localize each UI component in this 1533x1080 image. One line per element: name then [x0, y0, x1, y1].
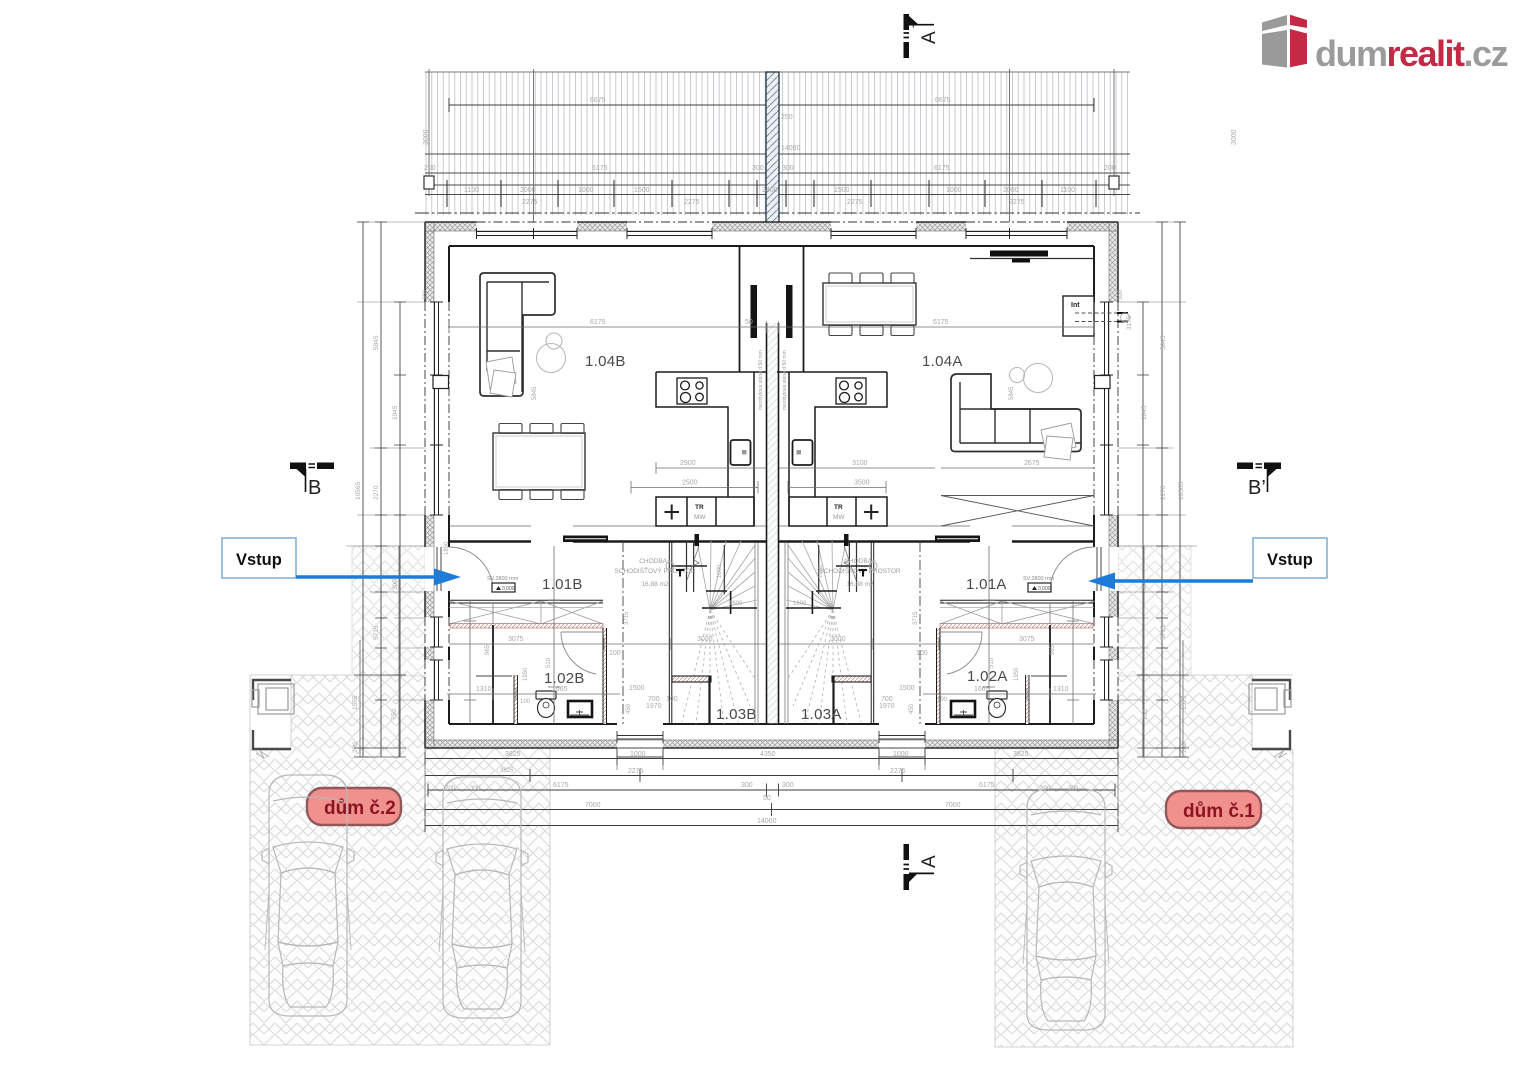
svg-text:750: 750 [391, 709, 398, 720]
svg-text:6175: 6175 [933, 319, 949, 326]
svg-text:6675: 6675 [590, 97, 606, 104]
svg-text:1950: 1950 [523, 667, 529, 681]
svg-text:MW: MW [833, 514, 845, 521]
svg-text:2270: 2270 [373, 485, 380, 500]
svg-text:5715: 5715 [373, 625, 380, 640]
svg-text:SV.2800 mm: SV.2800 mm [487, 576, 519, 582]
svg-text:1850: 1850 [444, 541, 450, 555]
svg-text:1970: 1970 [879, 703, 895, 710]
svg-text:3825: 3825 [500, 768, 514, 774]
svg-text:3715: 3715 [624, 611, 630, 625]
svg-text:3825: 3825 [1013, 751, 1029, 758]
svg-text:SV.2800 mm: SV.2800 mm [1023, 576, 1055, 582]
svg-text:300: 300 [752, 165, 764, 172]
svg-text:1.04A: 1.04A [922, 353, 963, 370]
svg-text:3100: 3100 [852, 460, 868, 467]
svg-text:4350: 4350 [760, 751, 776, 758]
svg-text:CHODBA+: CHODBA+ [844, 558, 876, 565]
svg-text:3000: 3000 [830, 636, 846, 643]
svg-text:3075: 3075 [508, 636, 524, 643]
svg-text:5845: 5845 [1009, 386, 1015, 400]
svg-text:dům č.1: dům č.1 [1183, 801, 1255, 822]
svg-text:2675: 2675 [1024, 460, 1040, 467]
svg-text:2900: 2900 [680, 460, 696, 467]
svg-text:1500: 1500 [834, 187, 850, 194]
svg-text:1500: 1500 [634, 187, 650, 194]
svg-text:200: 200 [424, 165, 436, 172]
svg-text:300: 300 [741, 782, 753, 789]
svg-text:1.03B: 1.03B [716, 706, 757, 723]
svg-text:750: 750 [1142, 709, 1149, 720]
svg-text:6675: 6675 [935, 97, 951, 104]
svg-text:2000: 2000 [1003, 187, 1019, 194]
svg-text:Int: Int [1071, 302, 1080, 309]
svg-text:700: 700 [881, 696, 893, 703]
svg-text:100: 100 [937, 697, 948, 703]
svg-text:510: 510 [989, 657, 995, 668]
svg-text:2275: 2275 [1009, 199, 1025, 206]
svg-text:2275: 2275 [847, 199, 863, 206]
svg-text:300: 300 [470, 786, 481, 792]
svg-text:100: 100 [666, 696, 678, 703]
svg-text:1575: 1575 [352, 695, 359, 710]
svg-text:50: 50 [745, 319, 753, 326]
svg-text:300: 300 [423, 289, 429, 300]
svg-text:dumrealit.cz: dumrealit.cz [1315, 33, 1508, 74]
svg-text:1.01B: 1.01B [542, 576, 583, 593]
svg-text:3000: 3000 [1231, 129, 1238, 145]
svg-text:450: 450 [626, 703, 632, 714]
svg-text:1045: 1045 [392, 405, 399, 420]
svg-text:14000: 14000 [757, 818, 777, 825]
svg-text:1000: 1000 [946, 187, 962, 194]
svg-text:A: A [919, 855, 940, 868]
svg-text:16,88 m2: 16,88 m2 [641, 581, 668, 588]
svg-text:1045: 1045 [1141, 405, 1148, 420]
svg-text:3825: 3825 [505, 751, 521, 758]
svg-text:6175: 6175 [934, 165, 950, 172]
svg-text:16,88 m2: 16,88 m2 [846, 581, 873, 588]
svg-text:1.02B: 1.02B [544, 670, 585, 687]
svg-text:2275: 2275 [684, 199, 700, 206]
svg-text:TR: TR [695, 504, 704, 511]
svg-text:MW: MW [694, 514, 706, 521]
svg-text:B’: B’ [1248, 477, 1266, 499]
svg-text:6175: 6175 [590, 319, 606, 326]
svg-text:2000: 2000 [520, 187, 536, 194]
svg-text:5845: 5845 [1160, 335, 1167, 350]
svg-text:1000: 1000 [630, 751, 646, 758]
svg-text:7000: 7000 [945, 802, 961, 809]
svg-text:5845: 5845 [373, 335, 380, 350]
svg-text:0,000: 0,000 [502, 586, 515, 592]
svg-text:1665: 1665 [974, 686, 990, 693]
svg-text:mezibytová stěna d 50 mm: mezibytová stěna d 50 mm [758, 350, 764, 410]
svg-text:1600: 1600 [729, 601, 743, 607]
svg-text:100: 100 [609, 650, 621, 657]
svg-text:100: 100 [520, 699, 531, 705]
svg-text:100: 100 [916, 650, 928, 657]
svg-text:3000: 3000 [697, 636, 713, 643]
svg-text:1000: 1000 [717, 564, 723, 578]
svg-text:200: 200 [352, 742, 359, 753]
svg-text:3175: 3175 [1126, 315, 1133, 330]
svg-text:700: 700 [648, 696, 660, 703]
svg-text:1100: 1100 [464, 187, 479, 194]
svg-text:3075: 3075 [1019, 636, 1035, 643]
svg-text:14000: 14000 [781, 145, 801, 152]
svg-text:450: 450 [909, 703, 915, 714]
svg-text:1000: 1000 [818, 564, 824, 578]
svg-text:50: 50 [763, 795, 771, 802]
svg-text:1.02A: 1.02A [967, 668, 1008, 685]
svg-text:2275: 2275 [522, 199, 538, 206]
svg-text:3715: 3715 [913, 611, 919, 625]
svg-text:3500: 3500 [854, 480, 870, 487]
svg-text:2275: 2275 [628, 768, 644, 775]
svg-text:200: 200 [1104, 165, 1116, 172]
svg-text:Vstup: Vstup [1267, 551, 1313, 569]
svg-text:Vstup: Vstup [236, 551, 282, 569]
svg-text:1310: 1310 [1053, 686, 1069, 693]
svg-text:6175: 6175 [592, 165, 608, 172]
svg-text:10565: 10565 [355, 482, 362, 500]
svg-text:1.01A: 1.01A [966, 576, 1007, 593]
svg-text:200: 200 [445, 786, 456, 792]
svg-text:300: 300 [782, 782, 794, 789]
svg-text:10565: 10565 [1178, 482, 1185, 500]
svg-text:mezibytová stěna d 50 mm: mezibytová stěna d 50 mm [782, 350, 788, 410]
svg-text:1665: 1665 [552, 686, 568, 693]
svg-text:1000: 1000 [578, 187, 594, 194]
svg-text:CHODBA+: CHODBA+ [639, 558, 671, 565]
svg-text:1575: 1575 [1181, 695, 1188, 710]
svg-text:300: 300 [392, 579, 399, 590]
svg-text:1950: 1950 [1014, 667, 1020, 681]
svg-text:5715: 5715 [1160, 625, 1167, 640]
svg-text:300: 300 [1118, 289, 1124, 300]
svg-text:965: 965 [485, 644, 491, 655]
svg-text:’: ’ [912, 24, 914, 36]
svg-text:6175: 6175 [979, 782, 995, 789]
svg-text:2500: 2500 [682, 480, 698, 487]
svg-text:5845: 5845 [532, 386, 538, 400]
svg-text:2270: 2270 [1160, 485, 1167, 500]
svg-text:1.03A: 1.03A [801, 706, 842, 723]
svg-text:2400: 2400 [762, 187, 778, 194]
svg-text:250: 250 [781, 114, 793, 121]
svg-text:965: 965 [1050, 644, 1056, 655]
svg-text:1600: 1600 [793, 601, 807, 607]
svg-text:1.04B: 1.04B [585, 353, 626, 370]
svg-text:7000: 7000 [585, 802, 601, 809]
svg-text:6175: 6175 [553, 782, 569, 789]
svg-text:1000: 1000 [893, 751, 909, 758]
svg-text:200: 200 [1181, 742, 1188, 753]
svg-text:dům č.2: dům č.2 [324, 798, 396, 819]
svg-text:3000: 3000 [423, 129, 430, 145]
svg-text:1500: 1500 [899, 685, 915, 692]
svg-text:2275: 2275 [890, 768, 906, 775]
svg-text:1500: 1500 [629, 685, 645, 692]
svg-text:1970: 1970 [646, 703, 662, 710]
svg-text:0,000: 0,000 [1038, 586, 1051, 592]
svg-text:510: 510 [546, 657, 552, 668]
svg-text:1310: 1310 [476, 686, 492, 693]
svg-text:A: A [919, 31, 940, 44]
svg-text:B: B [308, 477, 321, 499]
svg-text:TR: TR [834, 504, 843, 511]
svg-text:300: 300 [782, 165, 794, 172]
svg-text:1100: 1100 [1060, 187, 1075, 194]
